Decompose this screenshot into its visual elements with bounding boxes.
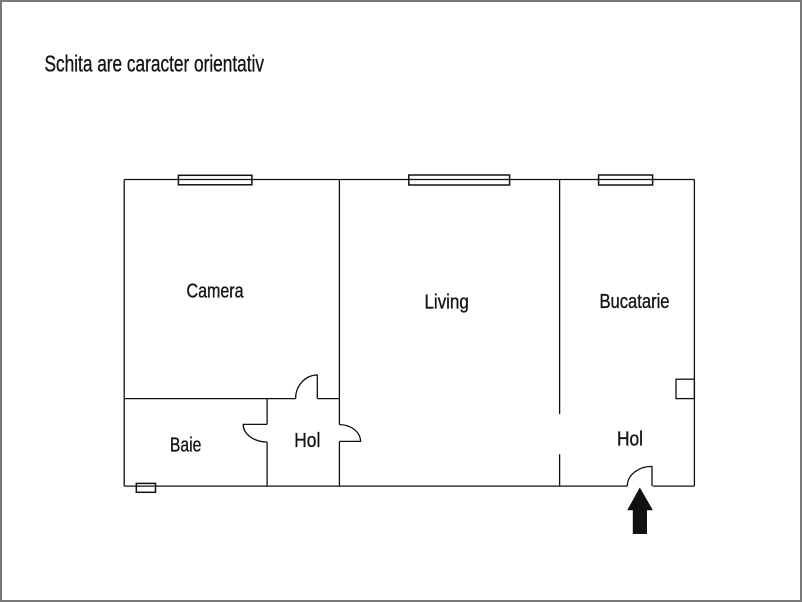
svg-text:Bucatarie: Bucatarie <box>600 291 670 313</box>
svg-text:Baie: Baie <box>170 434 201 456</box>
svg-text:Camera: Camera <box>187 280 245 302</box>
svg-text:Hol: Hol <box>294 430 320 452</box>
svg-text:Living: Living <box>425 291 469 313</box>
svg-text:Hol: Hol <box>617 428 643 450</box>
svg-text:Schita are caracter orientativ: Schita are caracter orientativ <box>45 51 265 77</box>
